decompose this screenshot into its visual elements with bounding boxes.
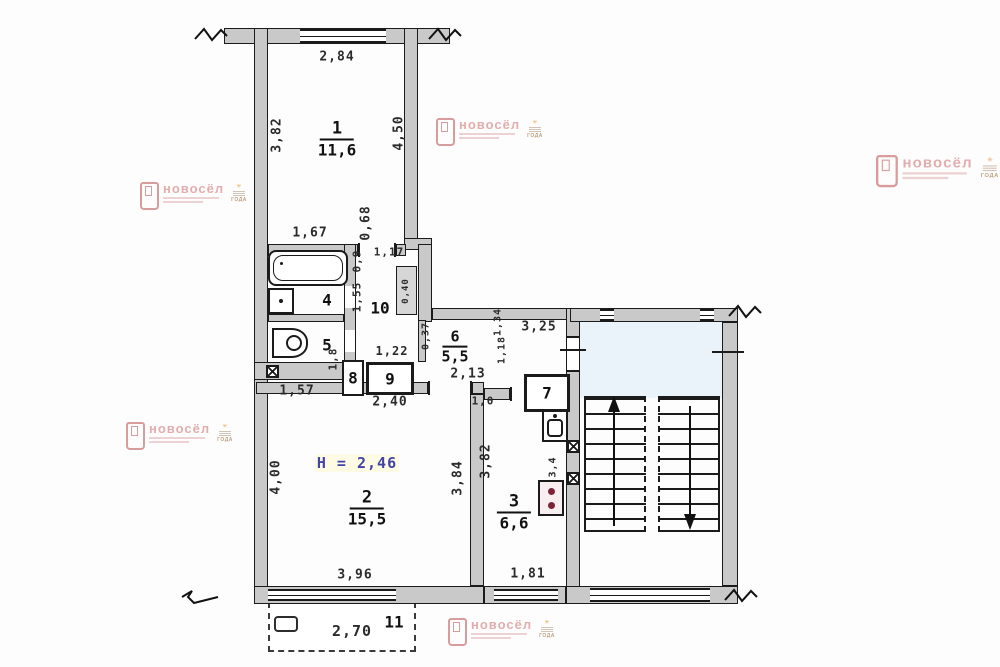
break-mark-icon [724, 587, 758, 605]
dim-label: 4,00 [269, 459, 284, 494]
dim-label: 2,70 [332, 622, 372, 640]
brand-icon [876, 155, 898, 187]
brand-icon [140, 182, 159, 210]
badge-year-label: ГОДА [981, 172, 999, 179]
brand-name: новосёл [459, 118, 520, 131]
award-badge: ✳ГОДА [981, 155, 999, 179]
entrance-door-opening [567, 338, 579, 370]
badge-year-label: ГОДА [231, 197, 247, 203]
break-mark-icon [728, 303, 762, 321]
dim-label: 2,84 [319, 50, 354, 65]
wall [268, 314, 344, 322]
dim-label: 0,40 [401, 278, 411, 304]
room-label: 215,5 [348, 487, 387, 528]
room-area: 15,5 [348, 509, 387, 528]
room-label: 36,6 [497, 491, 531, 532]
sparkle-icon: ✳ [987, 155, 993, 164]
stair-arrow-up-icon [608, 396, 620, 412]
brand-icon [448, 618, 467, 646]
window [300, 29, 386, 43]
dim-label: 1,55 [351, 282, 364, 313]
sparkle-icon: ✳ [223, 422, 228, 430]
dim-label: 1,0 [472, 395, 495, 408]
wall [470, 394, 484, 586]
dim-label: 0,68 [359, 205, 374, 240]
dim-label: 1,57 [279, 384, 314, 399]
brand-name: новосёл [902, 155, 972, 170]
window [700, 309, 714, 321]
window [600, 309, 614, 321]
door-jamb [566, 336, 580, 338]
washbasin-icon [268, 288, 294, 314]
height-note: H = 2,46 [315, 454, 399, 472]
dim-label: 1,67 [292, 226, 327, 241]
door-jamb [428, 381, 430, 395]
room-label: 65,5 [441, 327, 468, 366]
room-label: 111,6 [318, 118, 357, 159]
stair-arrow-down-icon [689, 406, 691, 516]
break-mark-icon [428, 26, 462, 44]
room-number: 9 [385, 370, 395, 389]
room-number: 1 [320, 120, 354, 140]
kitchen-sink-icon [542, 410, 568, 442]
stove-burner-icon [548, 502, 555, 509]
dim-label: 2,13 [450, 367, 485, 382]
wall [254, 28, 268, 604]
door-jamb [510, 387, 512, 401]
door-jamb [470, 381, 472, 395]
dim-label: 3,4 [548, 456, 559, 477]
floor-plan: 2,843,824,501,670,681,170,91,550,401,81,… [0, 0, 1000, 667]
stove-burner-icon [548, 488, 555, 495]
window [590, 588, 710, 602]
room-number: 5 [322, 336, 332, 355]
watermark: новосёл✳ГОДА [126, 422, 233, 450]
stair-arrow-down-icon [684, 514, 696, 530]
door-opening [345, 330, 355, 352]
room-area: 6,6 [497, 513, 531, 532]
dim-label: 3,82 [479, 443, 494, 478]
award-badge: ✳ГОДА [539, 618, 555, 639]
stair-arrow-up-icon [613, 410, 615, 526]
dim-label: 1,18 [497, 336, 508, 364]
sparkle-icon: ✳ [545, 618, 550, 626]
room-number: 4 [322, 291, 332, 310]
wall [418, 244, 432, 322]
badge-year-label: ГОДА [527, 133, 543, 139]
break-mark-icon [194, 26, 228, 44]
window [494, 589, 558, 601]
vent-icon [567, 472, 580, 485]
sparkle-icon: ✳ [533, 118, 538, 126]
stove-icon [538, 480, 564, 516]
vent-icon [567, 440, 580, 453]
room-number: 11 [384, 613, 403, 632]
room-number: 2 [350, 489, 384, 509]
dim-label: 0,9 [351, 250, 364, 273]
room-area: 5,5 [441, 347, 468, 365]
dim-label: 1,17 [374, 246, 405, 259]
dim-label: 1,22 [376, 344, 409, 358]
dim-label: 1,34 [493, 308, 504, 336]
dim-label: 2,40 [372, 395, 407, 410]
brand-name: новосёл [163, 182, 224, 195]
vent-icon [266, 365, 279, 378]
watermark: новосёл✳ГОДА [876, 155, 999, 187]
room-number: 10 [370, 299, 389, 318]
room-number: 8 [348, 369, 358, 388]
dim-label: 4,50 [392, 115, 407, 150]
balcony-door-icon [274, 616, 298, 632]
stairs-up-flight [584, 396, 646, 532]
dim-label: 1,81 [510, 567, 545, 582]
watermark: новосёл✳ГОДА [436, 118, 543, 146]
award-badge: ✳ГОДА [527, 118, 543, 139]
room-number: 3 [497, 493, 531, 513]
brand-icon [126, 422, 145, 450]
brand-name: новосёл [149, 422, 210, 435]
door-jamb [566, 370, 580, 372]
break-mark-icon [180, 588, 220, 606]
toilet-icon [272, 328, 308, 358]
dim-label: 3,84 [451, 460, 466, 495]
brand-icon [436, 118, 455, 146]
window [268, 589, 396, 601]
award-badge: ✳ГОДА [231, 182, 247, 203]
badge-year-label: ГОДА [539, 633, 555, 639]
wall [472, 382, 484, 394]
dim-label: 3,82 [270, 117, 285, 152]
stair-landing [578, 320, 724, 398]
wall-tick [560, 349, 586, 351]
bathtub-icon [268, 250, 348, 286]
sparkle-icon: ✳ [237, 182, 242, 190]
dim-label: 0,37 [421, 322, 432, 350]
brand-name: новосёл [471, 618, 532, 631]
award-badge: ✳ГОДА [217, 422, 233, 443]
badge-year-label: ГОДА [217, 437, 233, 443]
watermark: новосёл✳ГОДА [448, 618, 555, 646]
wall [722, 322, 738, 586]
room-area: 11,6 [318, 140, 357, 159]
room-number: 6 [442, 330, 467, 348]
watermark: новосёл✳ГОДА [140, 182, 247, 210]
wall-tick [712, 351, 744, 353]
room-number: 7 [542, 384, 552, 403]
dim-label: 3,25 [521, 320, 556, 335]
dim-label: 3,96 [337, 568, 372, 583]
